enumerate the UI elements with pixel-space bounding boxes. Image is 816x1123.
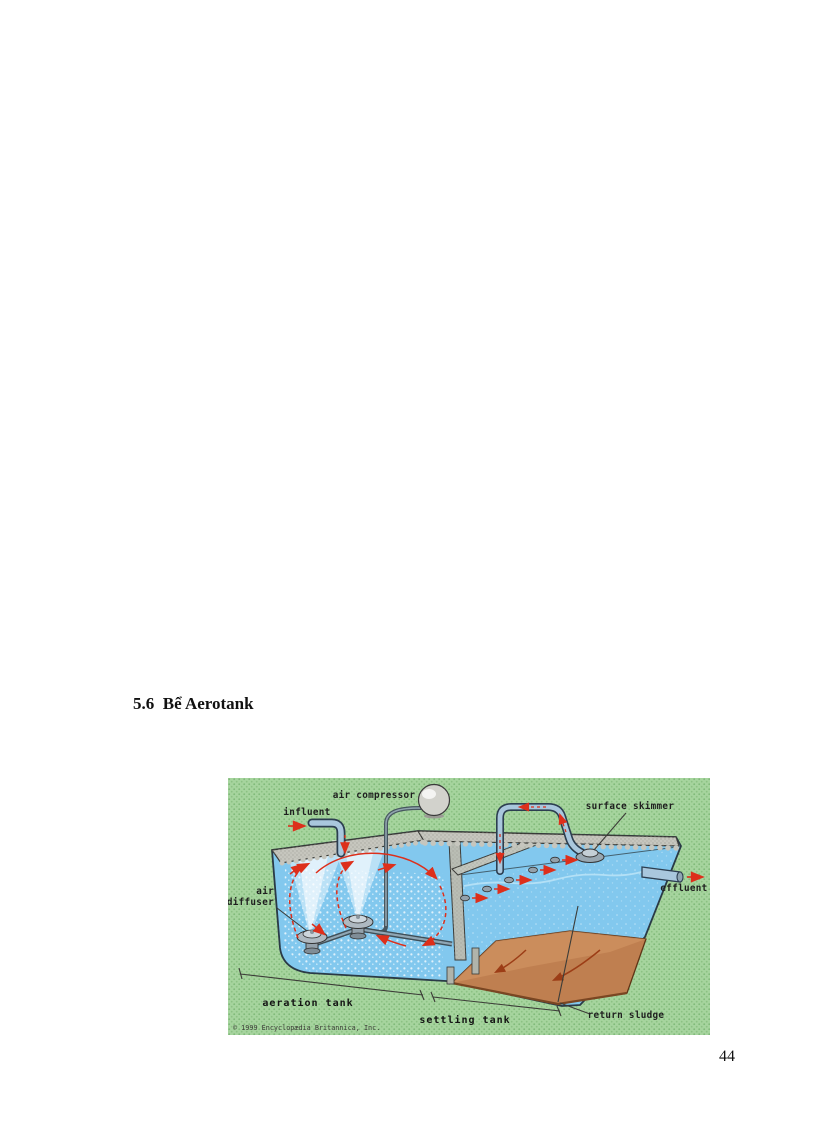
label-settling-tank: settling tank bbox=[419, 1014, 510, 1026]
label-air-diffuser-line1: air bbox=[256, 886, 274, 897]
document-page: 5.6 Bể Aerotank bbox=[0, 0, 816, 1123]
figure-copyright: © 1999 Encyclopædia Britannica, Inc. bbox=[233, 1024, 380, 1032]
label-return-sludge: return sludge bbox=[588, 1010, 665, 1021]
aeration-tank-figure: air compressor influent surface skimmer … bbox=[228, 778, 710, 1035]
section-heading: 5.6 Bể Aerotank bbox=[133, 694, 254, 714]
label-influent: influent bbox=[283, 807, 330, 818]
label-air-diffuser-line2: diffuser bbox=[228, 897, 274, 908]
label-effluent: effluent bbox=[660, 883, 707, 894]
label-surface-skimmer: surface skimmer bbox=[586, 801, 675, 812]
page-number: 44 bbox=[719, 1048, 735, 1066]
label-air-compressor: air compressor bbox=[333, 790, 416, 801]
label-aeration-tank: aeration tank bbox=[262, 997, 353, 1009]
